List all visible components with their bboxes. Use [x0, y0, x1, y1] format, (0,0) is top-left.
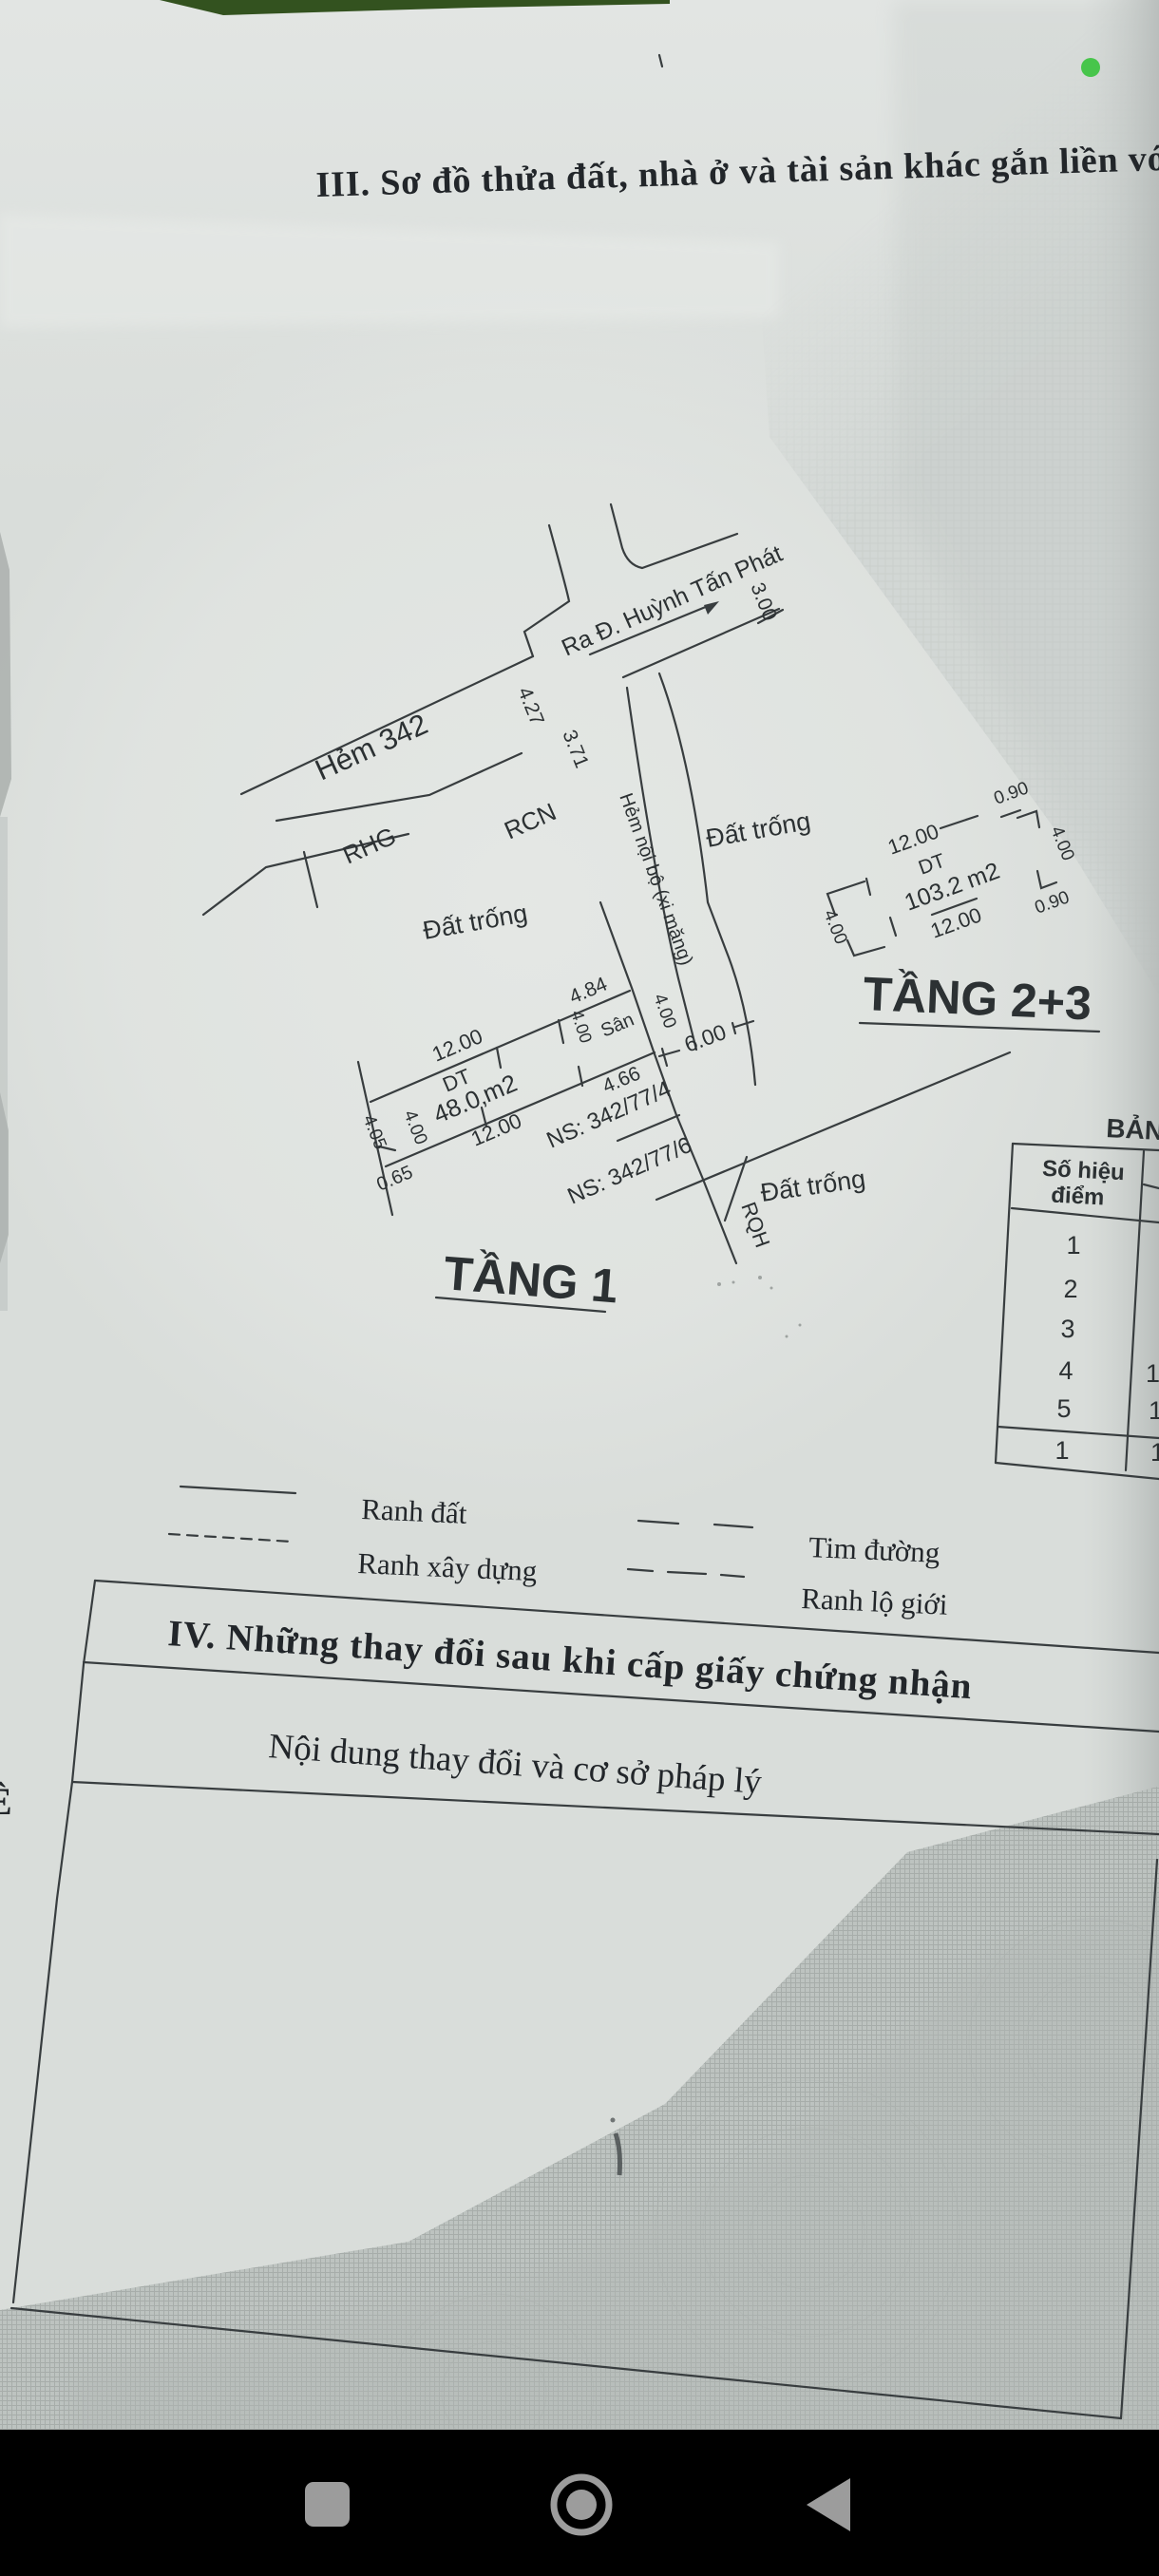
svg-text:4: 4 — [1058, 1356, 1073, 1385]
svg-text:1: 1 — [1054, 1436, 1069, 1465]
svg-text:1: 1 — [1146, 1359, 1159, 1388]
svg-text:5: 5 — [1056, 1394, 1071, 1423]
svg-text:Ranh lộ giới: Ranh lộ giới — [801, 1582, 949, 1621]
svg-text:1: 1 — [1066, 1231, 1080, 1260]
svg-text:Tim đường: Tim đường — [808, 1530, 940, 1569]
svg-text:điểm: điểm — [1051, 1183, 1105, 1211]
svg-text:3: 3 — [1060, 1315, 1074, 1343]
svg-text:1: 1 — [1150, 1438, 1159, 1467]
svg-text:BẢN: BẢN — [1106, 1112, 1159, 1146]
svg-text:2: 2 — [1063, 1275, 1077, 1303]
svg-text:TẦNG 2+3: TẦNG 2+3 — [863, 967, 1093, 1030]
svg-text:Ranh đất: Ranh đất — [361, 1492, 468, 1530]
svg-text:1: 1 — [1149, 1396, 1159, 1425]
svg-text:Số hiệu: Số hiệu — [1041, 1156, 1125, 1185]
svg-text:Ề: Ề — [0, 1780, 12, 1823]
